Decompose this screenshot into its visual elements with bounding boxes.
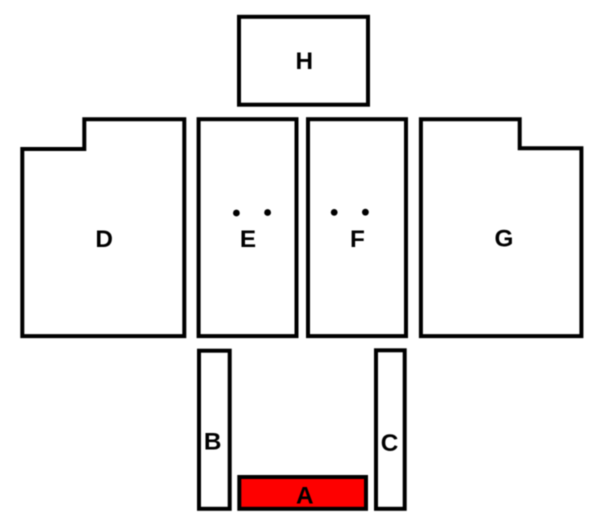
svg-text:F: F <box>350 226 365 253</box>
svg-text:E: E <box>240 226 256 253</box>
svg-text:D: D <box>95 226 113 253</box>
svg-text:B: B <box>204 429 222 456</box>
svg-text:G: G <box>495 226 514 253</box>
svg-text:A: A <box>296 482 314 509</box>
svg-text:C: C <box>381 430 399 457</box>
svg-text:H: H <box>296 48 314 75</box>
